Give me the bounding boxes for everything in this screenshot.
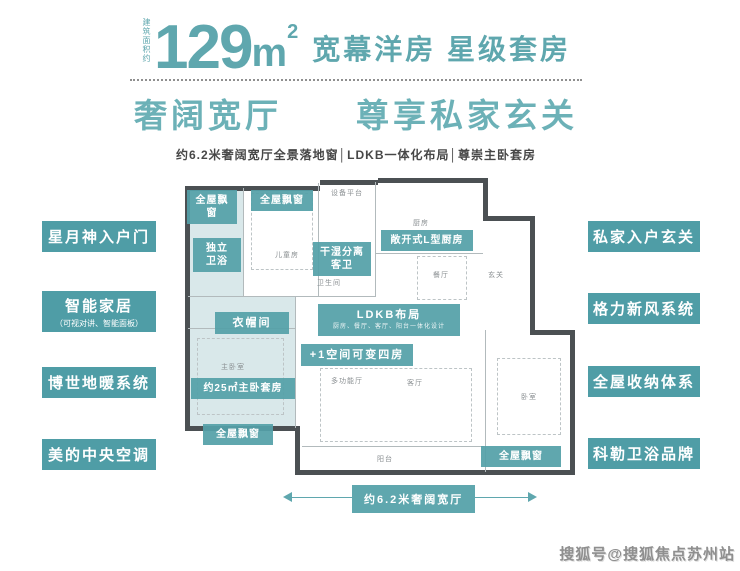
area-unit: m2 [251, 31, 298, 75]
poster-canvas: 建筑面积约 129 m2 宽幕洋房 星级套房 奢阔宽厅 尊享私家玄关 约6.2米… [0, 0, 740, 571]
chip-ldkb-title: LDKB布局 [357, 309, 422, 321]
partition [375, 253, 483, 254]
wall [483, 178, 488, 220]
partition [375, 182, 376, 296]
room-label-dining: 餐厅 [433, 270, 449, 280]
feature-badge-label: 星月神入户门 [48, 226, 150, 247]
wall [320, 180, 378, 185]
chip-plus-one-room: +1空间可变四房 [301, 344, 413, 366]
wall [530, 330, 575, 335]
chip-line1: 干湿分离 [320, 247, 364, 258]
feature-badge-label: 美的中央空调 [48, 444, 150, 465]
area-value: 129 [154, 22, 251, 75]
room-label-bathroom: 卫生间 [317, 278, 341, 288]
area-unit-sup: 2 [287, 21, 298, 43]
room-label-living: 客厅 [407, 378, 423, 388]
room-label-master-bedroom: 主卧室 [221, 362, 245, 372]
chip-ldkb-subtitle: 厨房、餐厅、客厅、阳台一体化设计 [323, 324, 455, 332]
feature-badge-fresh-air: 格力新风系统 [588, 293, 700, 324]
dimension-arrow-right [528, 492, 537, 502]
partition [243, 188, 244, 296]
chip-bay-window-bottom-right: 全屋飘窗 [481, 446, 561, 467]
chip-line1: 独立 [206, 243, 228, 254]
wall [530, 216, 535, 334]
chip-line2: 卫浴 [206, 256, 228, 267]
area-row: 建筑面积约 129 m2 宽幕洋房 星级套房 [130, 18, 582, 75]
chip-line2: 客卫 [331, 260, 353, 271]
feature-badge-bath-brand: 科勒卫浴品牌 [588, 438, 700, 469]
area-prefix-label: 建筑面积约 [141, 18, 152, 75]
wall [483, 216, 535, 221]
feature-badge-central-ac: 美的中央空调 [42, 439, 156, 470]
feature-badge-entry-door: 星月神入户门 [42, 221, 156, 252]
feature-badge-label: 格力新风系统 [593, 298, 695, 319]
floor-plan: 全屋飘窗 全屋飘窗 独立卫浴 干湿分离客卫 敞开式L型厨房 LDKB布局厨房、餐… [185, 178, 577, 480]
feature-badge-label: 科勒卫浴品牌 [593, 443, 695, 464]
partition [302, 446, 484, 447]
chip-open-kitchen: 敞开式L型厨房 [381, 230, 473, 251]
header: 建筑面积约 129 m2 宽幕洋房 星级套房 奢阔宽厅 尊享私家玄关 约6.2米… [130, 18, 582, 163]
tagline: 宽幕洋房 星级套房 [312, 28, 571, 75]
wall [570, 330, 575, 475]
features-line: 约6.2米奢阔宽厅全景落地窗│LDKB一体化布局│尊崇主卧套房 [130, 146, 582, 163]
room-label-bedroom: 卧室 [521, 392, 537, 402]
room-label-equipment-platform: 设备平台 [331, 188, 363, 198]
wall [295, 426, 300, 475]
feature-badge-smart-home: 智能家居 （可视对讲、智能面板） [42, 291, 156, 332]
dimension-label: 约6.2米奢阔宽厅 [352, 485, 475, 513]
feature-badge-label: 博世地暖系统 [48, 372, 150, 393]
area-unit-m: m [251, 31, 287, 75]
feature-badge-sublabel: （可视对讲、智能面板） [55, 318, 143, 329]
feature-badge-label: 私家入户玄关 [593, 226, 695, 247]
wall [378, 178, 488, 183]
room-label-multi-hall: 多功能厅 [331, 376, 363, 386]
chip-bay-window-top-mid: 全屋飘窗 [251, 190, 313, 211]
chip-ldkb: LDKB布局厨房、餐厅、客厅、阳台一体化设计 [318, 304, 460, 336]
watermark: 搜狐号@搜狐焦点苏州站 [559, 543, 735, 564]
room-label-children-room: 儿童房 [275, 250, 299, 260]
chip-master-suite: 约25㎡主卧套房 [191, 378, 295, 399]
furniture-bed-master [197, 338, 284, 415]
feature-badge-label: 智能家居 [65, 295, 133, 316]
wall [300, 470, 575, 475]
feature-badge-label: 全屋收纳体系 [593, 371, 695, 392]
chip-cloakroom: 衣帽间 [215, 312, 289, 334]
chip-bay-window-top-left: 全屋飘窗 [187, 190, 237, 224]
headline: 奢阔宽厅 尊享私家玄关 [130, 89, 582, 137]
room-label-kitchen: 厨房 [413, 218, 429, 228]
feature-badge-storage-system: 全屋收纳体系 [588, 366, 700, 397]
chip-dry-wet-bath: 干湿分离客卫 [313, 242, 371, 276]
chip-independent-bath: 独立卫浴 [193, 238, 241, 272]
feature-badge-private-foyer: 私家入户玄关 [588, 221, 700, 252]
chip-bay-window-bottom-left: 全屋飘窗 [203, 424, 273, 445]
partition [188, 296, 376, 297]
room-label-balcony: 阳台 [377, 454, 393, 464]
room-label-foyer: 玄关 [488, 270, 504, 280]
dimension-arrow-left [283, 492, 292, 502]
partition [295, 296, 296, 428]
feature-badge-floor-heating: 博世地暖系统 [42, 367, 156, 398]
